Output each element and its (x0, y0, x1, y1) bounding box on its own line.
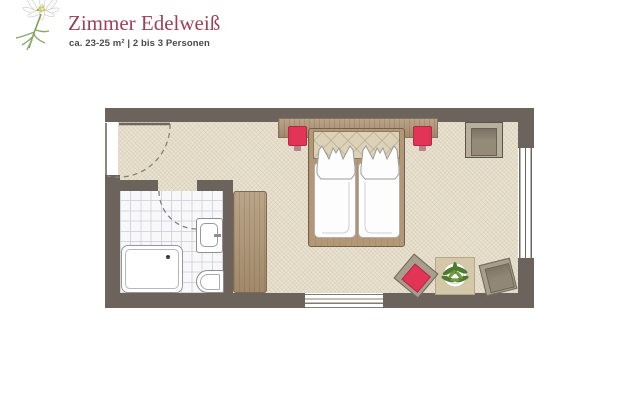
bed-headboard-cushion (313, 131, 400, 159)
sink (196, 218, 223, 253)
sink-tap (214, 234, 221, 237)
side-table (435, 257, 475, 295)
window-bottom-glazing (305, 294, 383, 308)
edelweiss-flower-icon (4, 0, 68, 60)
nightstand-right (413, 126, 432, 146)
room-specs: ca. 23-25 m² | 2 bis 3 Personen (69, 38, 210, 49)
armchair-top-right-seat (471, 128, 497, 156)
chair-bottom-right-seat (485, 263, 515, 293)
page-title: Zimmer Edelweiß (68, 11, 220, 36)
toilet-bowl (200, 274, 220, 290)
wall-left (105, 175, 120, 308)
bathroom-wall-top-left (120, 180, 158, 191)
duvet-left (314, 162, 356, 238)
shower (121, 245, 183, 293)
wardrobe (233, 191, 267, 293)
duvet-right (358, 162, 400, 238)
window-bottom (305, 293, 383, 308)
floor-plan (105, 108, 534, 308)
window-right (518, 148, 534, 258)
shower-tray (125, 249, 179, 289)
bathroom-wall-divider (223, 180, 233, 308)
armchair-top-right (465, 122, 503, 158)
wall-bottom-right (383, 293, 534, 308)
toilet (196, 270, 224, 293)
wall-right-top (518, 108, 534, 148)
nightstand-left (288, 126, 307, 146)
entry-opening-edge (105, 123, 107, 175)
edelweiss-logo (4, 0, 68, 60)
wall-bottom-left (105, 293, 305, 308)
shower-drain (166, 255, 170, 259)
window-right-glazing (519, 148, 533, 258)
